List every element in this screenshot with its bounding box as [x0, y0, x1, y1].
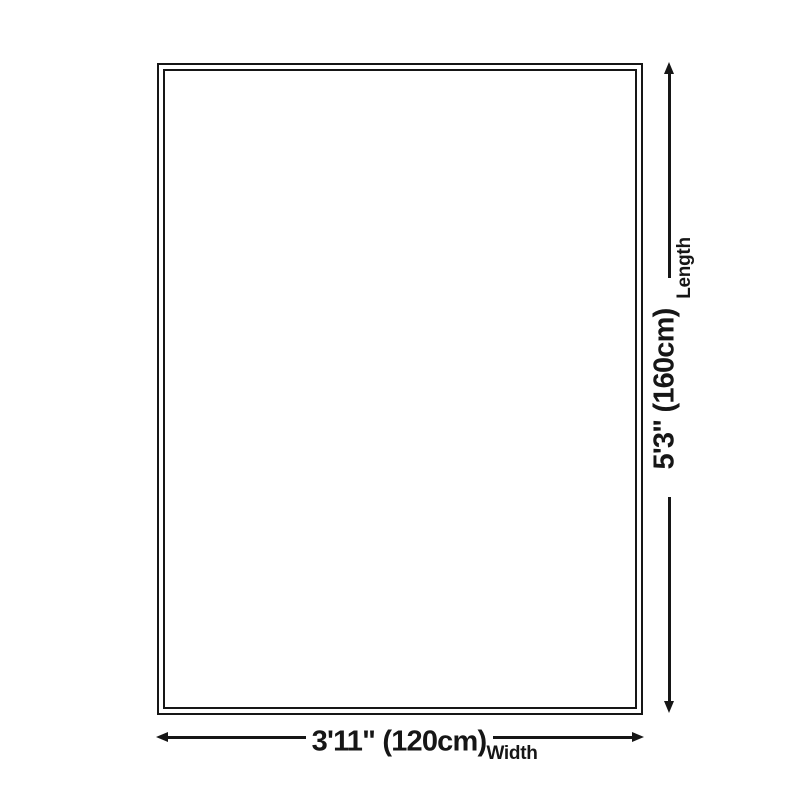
size-diagram-canvas: Length 5'3" (160cm) 3'11" (120cm) Width: [0, 0, 800, 800]
rug-outline: [157, 63, 643, 715]
width-value: 3'11" (120cm): [312, 726, 487, 759]
width-dimension-line-left: [167, 736, 306, 739]
width-dimension-line-right: [493, 736, 633, 739]
length-label: Length: [674, 237, 696, 299]
length-value: 5'3" (160cm): [649, 309, 682, 470]
rug-inner-outline: [163, 69, 637, 709]
arrow-down-icon: [664, 701, 674, 713]
width-label: Width: [486, 743, 537, 765]
arrow-right-icon: [632, 732, 644, 742]
length-dimension-line-bottom: [668, 497, 671, 702]
length-dimension-line-top: [668, 73, 671, 278]
